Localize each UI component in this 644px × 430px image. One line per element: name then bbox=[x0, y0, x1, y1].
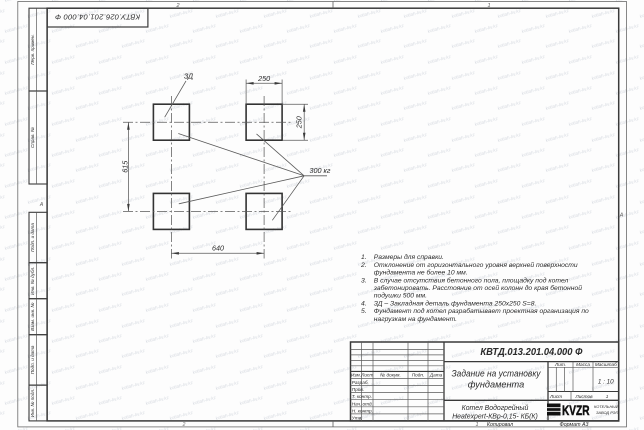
svg-text:kotlah-kv.kz: kotlah-kv.kz bbox=[239, 426, 264, 430]
svg-text:kotlah-kv.kz: kotlah-kv.kz bbox=[75, 224, 100, 235]
svg-text:kotlah-kv.kz: kotlah-kv.kz bbox=[169, 410, 194, 421]
svg-text:kotlah-kv.kz: kotlah-kv.kz bbox=[568, 147, 593, 158]
svg-text:kotlah-kv.kz: kotlah-kv.kz bbox=[192, 23, 217, 34]
svg-text:kotlah-kv.kz: kotlah-kv.kz bbox=[427, 426, 452, 430]
svg-text:kotlah-kv.kz: kotlah-kv.kz bbox=[98, 85, 123, 96]
svg-text:kotlah-kv.kz: kotlah-kv.kz bbox=[4, 178, 29, 189]
svg-text:kotlah-kv.kz: kotlah-kv.kz bbox=[169, 256, 194, 267]
svg-text:kotlah-kv.kz: kotlah-kv.kz bbox=[239, 147, 264, 158]
svg-text:kotlah-kv.kz: kotlah-kv.kz bbox=[145, 395, 170, 406]
svg-text:kotlah-kv.kz: kotlah-kv.kz bbox=[568, 178, 593, 189]
svg-text:kotlah-kv.kz: kotlah-kv.kz bbox=[239, 395, 264, 406]
svg-text:kotlah-kv.kz: kotlah-kv.kz bbox=[639, 194, 644, 205]
svg-text:kotlah-kv.kz: kotlah-kv.kz bbox=[263, 38, 288, 49]
svg-text:kotlah-kv.kz: kotlah-kv.kz bbox=[309, 70, 334, 81]
svg-text:Масштаб: Масштаб bbox=[595, 362, 617, 367]
svg-text:kotlah-kv.kz: kotlah-kv.kz bbox=[4, 54, 29, 65]
svg-text:kotlah-kv.kz: kotlah-kv.kz bbox=[568, 240, 593, 251]
svg-text:kotlah-kv.kz: kotlah-kv.kz bbox=[98, 54, 123, 65]
svg-text:kotlah-kv.kz: kotlah-kv.kz bbox=[591, 256, 616, 267]
svg-text:kotlah-kv.kz: kotlah-kv.kz bbox=[51, 147, 76, 158]
svg-text:kotlah-kv.kz: kotlah-kv.kz bbox=[333, 426, 358, 430]
svg-text:kotlah-kv.kz: kotlah-kv.kz bbox=[51, 116, 76, 127]
svg-text:kotlah-kv.kz: kotlah-kv.kz bbox=[51, 178, 76, 189]
svg-text:kotlah-kv.kz: kotlah-kv.kz bbox=[427, 240, 452, 251]
svg-text:kotlah-kv.kz: kotlah-kv.kz bbox=[380, 395, 405, 406]
svg-text:Листов: Листов bbox=[575, 394, 594, 399]
svg-text:kotlah-kv.kz: kotlah-kv.kz bbox=[51, 54, 76, 65]
svg-text:KVZR: KVZR bbox=[562, 403, 590, 418]
svg-text:kotlah-kv.kz: kotlah-kv.kz bbox=[263, 100, 288, 111]
svg-text:1: 1 bbox=[487, 3, 490, 9]
svg-text:kotlah-kv.kz: kotlah-kv.kz bbox=[568, 85, 593, 96]
svg-text:kotlah-kv.kz: kotlah-kv.kz bbox=[451, 194, 476, 205]
svg-text:kotlah-kv.kz: kotlah-kv.kz bbox=[286, 54, 311, 65]
svg-text:kotlah-kv.kz: kotlah-kv.kz bbox=[591, 348, 616, 359]
svg-text:kotlah-kv.kz: kotlah-kv.kz bbox=[639, 380, 644, 391]
svg-text:kotlah-kv.kz: kotlah-kv.kz bbox=[215, 348, 240, 359]
svg-text:kotlah-kv.kz: kotlah-kv.kz bbox=[51, 364, 76, 375]
svg-text:kotlah-kv.kz: kotlah-kv.kz bbox=[497, 8, 522, 19]
svg-text:kotlah-kv.kz: kotlah-kv.kz bbox=[27, 8, 52, 19]
svg-text:Взам. инв. №: Взам. инв. № bbox=[30, 302, 35, 330]
svg-text:kotlah-kv.kz: kotlah-kv.kz bbox=[639, 348, 644, 359]
svg-text:kotlah-kv.kz: kotlah-kv.kz bbox=[309, 256, 334, 267]
svg-text:kotlah-kv.kz: kotlah-kv.kz bbox=[98, 23, 123, 34]
svg-text:Перв. примен.: Перв. примен. bbox=[30, 34, 35, 65]
svg-text:kotlah-kv.kz: kotlah-kv.kz bbox=[309, 380, 334, 391]
svg-text:kotlah-kv.kz: kotlah-kv.kz bbox=[0, 38, 6, 49]
svg-text:kotlah-kv.kz: kotlah-kv.kz bbox=[0, 380, 6, 391]
svg-text:kotlah-kv.kz: kotlah-kv.kz bbox=[403, 132, 428, 143]
svg-text:kotlah-kv.kz: kotlah-kv.kz bbox=[121, 348, 146, 359]
svg-text:kotlah-kv.kz: kotlah-kv.kz bbox=[591, 318, 616, 329]
svg-text:kotlah-kv.kz: kotlah-kv.kz bbox=[27, 100, 52, 111]
svg-text:kotlah-kv.kz: kotlah-kv.kz bbox=[98, 333, 123, 344]
svg-text:kotlah-kv.kz: kotlah-kv.kz bbox=[145, 85, 170, 96]
svg-text:kotlah-kv.kz: kotlah-kv.kz bbox=[0, 348, 6, 359]
svg-text:kotlah-kv.kz: kotlah-kv.kz bbox=[98, 302, 123, 313]
svg-text:kotlah-kv.kz: kotlah-kv.kz bbox=[497, 194, 522, 205]
svg-text:Утв.: Утв. bbox=[352, 415, 363, 420]
svg-text:kotlah-kv.kz: kotlah-kv.kz bbox=[145, 333, 170, 344]
svg-text:kotlah-kv.kz: kotlah-kv.kz bbox=[403, 224, 428, 235]
svg-text:kotlah-kv.kz: kotlah-kv.kz bbox=[521, 240, 546, 251]
svg-text:kotlah-kv.kz: kotlah-kv.kz bbox=[427, 209, 452, 220]
svg-text:1: 1 bbox=[606, 394, 609, 399]
svg-text:kotlah-kv.kz: kotlah-kv.kz bbox=[169, 318, 194, 329]
svg-text:kotlah-kv.kz: kotlah-kv.kz bbox=[192, 209, 217, 220]
svg-text:kotlah-kv.kz: kotlah-kv.kz bbox=[474, 116, 499, 127]
svg-text:kotlah-kv.kz: kotlah-kv.kz bbox=[4, 271, 29, 282]
svg-text:kotlah-kv.kz: kotlah-kv.kz bbox=[239, 240, 264, 251]
svg-text:kotlah-kv.kz: kotlah-kv.kz bbox=[427, 54, 452, 65]
svg-text:kotlah-kv.kz: kotlah-kv.kz bbox=[497, 132, 522, 143]
svg-text:kotlah-kv.kz: kotlah-kv.kz bbox=[497, 70, 522, 81]
svg-text:kotlah-kv.kz: kotlah-kv.kz bbox=[403, 8, 428, 19]
svg-text:kotlah-kv.kz: kotlah-kv.kz bbox=[239, 54, 264, 65]
svg-text:kotlah-kv.kz: kotlah-kv.kz bbox=[357, 100, 382, 111]
svg-text:КВТД.013.201.04.000 Ф: КВТД.013.201.04.000 Ф bbox=[480, 347, 582, 358]
svg-text:kotlah-kv.kz: kotlah-kv.kz bbox=[380, 209, 405, 220]
svg-text:kotlah-kv.kz: kotlah-kv.kz bbox=[357, 194, 382, 205]
svg-text:kotlah-kv.kz: kotlah-kv.kz bbox=[639, 318, 644, 329]
svg-text:kotlah-kv.kz: kotlah-kv.kz bbox=[215, 380, 240, 391]
svg-text:kotlah-kv.kz: kotlah-kv.kz bbox=[145, 240, 170, 251]
svg-text:kotlah-kv.kz: kotlah-kv.kz bbox=[497, 318, 522, 329]
svg-text:КВТУ.026.201.04.000 Ф: КВТУ.026.201.04.000 Ф bbox=[55, 13, 140, 22]
svg-text:kotlah-kv.kz: kotlah-kv.kz bbox=[451, 8, 476, 19]
svg-text:kotlah-kv.kz: kotlah-kv.kz bbox=[239, 302, 264, 313]
svg-text:kotlah-kv.kz: kotlah-kv.kz bbox=[545, 380, 570, 391]
svg-text:kotlah-kv.kz: kotlah-kv.kz bbox=[474, 23, 499, 34]
svg-text:kotlah-kv.kz: kotlah-kv.kz bbox=[121, 132, 146, 143]
svg-text:А: А bbox=[39, 202, 44, 208]
svg-text:kotlah-kv.kz: kotlah-kv.kz bbox=[98, 178, 123, 189]
svg-text:kotlah-kv.kz: kotlah-kv.kz bbox=[75, 380, 100, 391]
svg-text:kotlah-kv.kz: kotlah-kv.kz bbox=[309, 286, 334, 297]
svg-text:kotlah-kv.kz: kotlah-kv.kz bbox=[591, 38, 616, 49]
svg-text:kotlah-kv.kz: kotlah-kv.kz bbox=[121, 70, 146, 81]
svg-text:2.: 2. bbox=[360, 262, 367, 269]
svg-text:kotlah-kv.kz: kotlah-kv.kz bbox=[333, 209, 358, 220]
svg-text:kotlah-kv.kz: kotlah-kv.kz bbox=[286, 271, 311, 282]
svg-text:kotlah-kv.kz: kotlah-kv.kz bbox=[591, 286, 616, 297]
svg-text:kotlah-kv.kz: kotlah-kv.kz bbox=[639, 256, 644, 267]
svg-text:kotlah-kv.kz: kotlah-kv.kz bbox=[98, 209, 123, 220]
svg-text:kotlah-kv.kz: kotlah-kv.kz bbox=[639, 8, 644, 19]
svg-text:kotlah-kv.kz: kotlah-kv.kz bbox=[639, 224, 644, 235]
svg-text:kotlah-kv.kz: kotlah-kv.kz bbox=[521, 23, 546, 34]
svg-text:kotlah-kv.kz: kotlah-kv.kz bbox=[333, 240, 358, 251]
svg-text:kotlah-kv.kz: kotlah-kv.kz bbox=[591, 70, 616, 81]
svg-text:kotlah-kv.kz: kotlah-kv.kz bbox=[286, 364, 311, 375]
svg-text:№ докум.: № докум. bbox=[380, 373, 401, 378]
svg-text:kotlah-kv.kz: kotlah-kv.kz bbox=[427, 85, 452, 96]
svg-text:kotlah-kv.kz: kotlah-kv.kz bbox=[215, 132, 240, 143]
svg-text:нагрузкам на фундамент.: нагрузкам на фундамент. bbox=[374, 315, 457, 323]
svg-text:kotlah-kv.kz: kotlah-kv.kz bbox=[51, 426, 76, 430]
svg-text:kotlah-kv.kz: kotlah-kv.kz bbox=[639, 38, 644, 49]
svg-text:kotlah-kv.kz: kotlah-kv.kz bbox=[309, 348, 334, 359]
svg-text:kotlah-kv.kz: kotlah-kv.kz bbox=[169, 162, 194, 173]
svg-text:3.: 3. bbox=[361, 277, 367, 284]
svg-text:kotlah-kv.kz: kotlah-kv.kz bbox=[98, 240, 123, 251]
svg-text:kotlah-kv.kz: kotlah-kv.kz bbox=[403, 194, 428, 205]
svg-text:kotlah-kv.kz: kotlah-kv.kz bbox=[521, 178, 546, 189]
svg-text:kotlah-kv.kz: kotlah-kv.kz bbox=[451, 224, 476, 235]
svg-text:kotlah-kv.kz: kotlah-kv.kz bbox=[4, 85, 29, 96]
svg-text:Формат А3: Формат А3 bbox=[560, 422, 589, 428]
svg-text:kotlah-kv.kz: kotlah-kv.kz bbox=[192, 302, 217, 313]
svg-text:kotlah-kv.kz: kotlah-kv.kz bbox=[121, 286, 146, 297]
svg-text:kotlah-kv.kz: kotlah-kv.kz bbox=[286, 85, 311, 96]
svg-text:фундамента не более 10 мм.: фундамента не более 10 мм. bbox=[374, 269, 468, 277]
svg-text:kotlah-kv.kz: kotlah-kv.kz bbox=[169, 8, 194, 19]
svg-text:Инв. № дубл.: Инв. № дубл. bbox=[30, 267, 35, 295]
svg-text:kotlah-kv.kz: kotlah-kv.kz bbox=[474, 147, 499, 158]
svg-text:kotlah-kv.kz: kotlah-kv.kz bbox=[145, 116, 170, 127]
svg-text:kotlah-kv.kz: kotlah-kv.kz bbox=[403, 70, 428, 81]
svg-text:kotlah-kv.kz: kotlah-kv.kz bbox=[192, 271, 217, 282]
svg-text:kotlah-kv.kz: kotlah-kv.kz bbox=[263, 318, 288, 329]
svg-text:kotlah-kv.kz: kotlah-kv.kz bbox=[51, 240, 76, 251]
svg-text:kotlah-kv.kz: kotlah-kv.kz bbox=[0, 286, 6, 297]
svg-text:kotlah-kv.kz: kotlah-kv.kz bbox=[309, 194, 334, 205]
svg-text:kotlah-kv.kz: kotlah-kv.kz bbox=[474, 178, 499, 189]
svg-text:kotlah-kv.kz: kotlah-kv.kz bbox=[591, 8, 616, 19]
svg-text:kotlah-kv.kz: kotlah-kv.kz bbox=[75, 38, 100, 49]
svg-text:1.: 1. bbox=[361, 254, 367, 261]
svg-text:kotlah-kv.kz: kotlah-kv.kz bbox=[98, 116, 123, 127]
svg-text:kotlah-kv.kz: kotlah-kv.kz bbox=[263, 8, 288, 19]
svg-text:kotlah-kv.kz: kotlah-kv.kz bbox=[169, 348, 194, 359]
svg-text:kotlah-kv.kz: kotlah-kv.kz bbox=[286, 209, 311, 220]
svg-text:Подп. и дата: Подп. и дата bbox=[30, 223, 35, 252]
svg-text:kotlah-kv.kz: kotlah-kv.kz bbox=[98, 395, 123, 406]
svg-text:kotlah-kv.kz: kotlah-kv.kz bbox=[121, 38, 146, 49]
svg-text:kotlah-kv.kz: kotlah-kv.kz bbox=[121, 410, 146, 421]
svg-text:kotlah-kv.kz: kotlah-kv.kz bbox=[333, 271, 358, 282]
svg-text:kotlah-kv.kz: kotlah-kv.kz bbox=[215, 318, 240, 329]
svg-text:kotlah-kv.kz: kotlah-kv.kz bbox=[4, 116, 29, 127]
svg-text:kotlah-kv.kz: kotlah-kv.kz bbox=[0, 132, 6, 143]
svg-text:Нач. отд.: Нач. отд. bbox=[352, 401, 373, 406]
svg-text:kotlah-kv.kz: kotlah-kv.kz bbox=[380, 426, 405, 430]
svg-text:kotlah-kv.kz: kotlah-kv.kz bbox=[215, 8, 240, 19]
svg-text:kotlah-kv.kz: kotlah-kv.kz bbox=[215, 224, 240, 235]
svg-text:kotlah-kv.kz: kotlah-kv.kz bbox=[545, 70, 570, 81]
svg-text:kotlah-kv.kz: kotlah-kv.kz bbox=[380, 178, 405, 189]
svg-text:kotlah-kv.kz: kotlah-kv.kz bbox=[192, 333, 217, 344]
svg-text:kotlah-kv.kz: kotlah-kv.kz bbox=[286, 240, 311, 251]
svg-text:kotlah-kv.kz: kotlah-kv.kz bbox=[309, 100, 334, 111]
svg-text:Котел Водогрейный: Котел Водогрейный bbox=[462, 404, 529, 412]
svg-text:kotlah-kv.kz: kotlah-kv.kz bbox=[75, 318, 100, 329]
svg-text:kotlah-kv.kz: kotlah-kv.kz bbox=[474, 54, 499, 65]
svg-text:kotlah-kv.kz: kotlah-kv.kz bbox=[521, 54, 546, 65]
svg-text:kotlah-kv.kz: kotlah-kv.kz bbox=[333, 302, 358, 313]
svg-text:kotlah-kv.kz: kotlah-kv.kz bbox=[51, 271, 76, 282]
svg-text:kotlah-kv.kz: kotlah-kv.kz bbox=[98, 271, 123, 282]
svg-text:kotlah-kv.kz: kotlah-kv.kz bbox=[51, 23, 76, 34]
svg-text:фундамента: фундамента bbox=[468, 380, 524, 390]
svg-text:kotlah-kv.kz: kotlah-kv.kz bbox=[263, 256, 288, 267]
svg-text:kotlah-kv.kz: kotlah-kv.kz bbox=[75, 162, 100, 173]
svg-text:забетонировать. Расстояние от: забетонировать. Расстояние от осей колон… bbox=[373, 284, 582, 292]
svg-text:kotlah-kv.kz: kotlah-kv.kz bbox=[263, 380, 288, 391]
svg-text:Размеры для справки.: Размеры для справки. bbox=[374, 253, 444, 261]
svg-text:kotlah-kv.kz: kotlah-kv.kz bbox=[545, 100, 570, 111]
svg-text:kotlah-kv.kz: kotlah-kv.kz bbox=[474, 209, 499, 220]
svg-text:kotlah-kv.kz: kotlah-kv.kz bbox=[192, 54, 217, 65]
svg-text:kotlah-kv.kz: kotlah-kv.kz bbox=[263, 286, 288, 297]
svg-text:kotlah-kv.kz: kotlah-kv.kz bbox=[615, 426, 640, 430]
svg-text:kotlah-kv.kz: kotlah-kv.kz bbox=[215, 410, 240, 421]
svg-text:kotlah-kv.kz: kotlah-kv.kz bbox=[357, 132, 382, 143]
svg-text:kotlah-kv.kz: kotlah-kv.kz bbox=[427, 147, 452, 158]
svg-text:kotlah-kv.kz: kotlah-kv.kz bbox=[215, 256, 240, 267]
svg-text:kotlah-kv.kz: kotlah-kv.kz bbox=[4, 395, 29, 406]
svg-text:Н. контр.: Н. контр. bbox=[352, 408, 373, 413]
svg-text:kotlah-kv.kz: kotlah-kv.kz bbox=[451, 70, 476, 81]
svg-text:kotlah-kv.kz: kotlah-kv.kz bbox=[545, 194, 570, 205]
svg-text:kotlah-kv.kz: kotlah-kv.kz bbox=[4, 147, 29, 158]
svg-text:kotlah-kv.kz: kotlah-kv.kz bbox=[0, 100, 6, 111]
svg-text:kotlah-kv.kz: kotlah-kv.kz bbox=[169, 100, 194, 111]
svg-text:kotlah-kv.kz: kotlah-kv.kz bbox=[380, 54, 405, 65]
svg-text:kotlah-kv.kz: kotlah-kv.kz bbox=[451, 348, 476, 359]
svg-text:Отклонение от горизонтального: Отклонение от горизонтального уровня вер… bbox=[374, 261, 578, 269]
svg-text:kotlah-kv.kz: kotlah-kv.kz bbox=[145, 209, 170, 220]
svg-text:kotlah-kv.kz: kotlah-kv.kz bbox=[380, 116, 405, 127]
svg-text:kotlah-kv.kz: kotlah-kv.kz bbox=[309, 224, 334, 235]
svg-text:Дата: Дата bbox=[429, 373, 443, 378]
svg-text:kotlah-kv.kz: kotlah-kv.kz bbox=[4, 302, 29, 313]
svg-text:kotlah-kv.kz: kotlah-kv.kz bbox=[286, 333, 311, 344]
svg-text:kotlah-kv.kz: kotlah-kv.kz bbox=[568, 271, 593, 282]
svg-text:2: 2 bbox=[175, 3, 179, 9]
svg-text:kotlah-kv.kz: kotlah-kv.kz bbox=[451, 100, 476, 111]
svg-text:подушки 500 мм.: подушки 500 мм. bbox=[374, 292, 427, 300]
svg-text:kotlah-kv.kz: kotlah-kv.kz bbox=[98, 147, 123, 158]
svg-text:КОТЕЛЬНЫЙ: КОТЕЛЬНЫЙ bbox=[594, 404, 619, 409]
svg-text:kotlah-kv.kz: kotlah-kv.kz bbox=[98, 426, 123, 430]
svg-text:kotlah-kv.kz: kotlah-kv.kz bbox=[4, 333, 29, 344]
svg-text:5.: 5. bbox=[361, 308, 367, 315]
svg-text:kotlah-kv.kz: kotlah-kv.kz bbox=[239, 271, 264, 282]
svg-text:Масса: Масса bbox=[576, 362, 590, 367]
svg-text:kotlah-kv.kz: kotlah-kv.kz bbox=[145, 54, 170, 65]
svg-text:kotlah-kv.kz: kotlah-kv.kz bbox=[169, 380, 194, 391]
svg-text:kotlah-kv.kz: kotlah-kv.kz bbox=[239, 364, 264, 375]
svg-text:kotlah-kv.kz: kotlah-kv.kz bbox=[75, 132, 100, 143]
svg-text:kotlah-kv.kz: kotlah-kv.kz bbox=[309, 318, 334, 329]
svg-text:kotlah-kv.kz: kotlah-kv.kz bbox=[121, 100, 146, 111]
svg-text:kotlah-kv.kz: kotlah-kv.kz bbox=[568, 209, 593, 220]
svg-text:kotlah-kv.kz: kotlah-kv.kz bbox=[286, 147, 311, 158]
svg-text:kotlah-kv.kz: kotlah-kv.kz bbox=[145, 364, 170, 375]
svg-text:kotlah-kv.kz: kotlah-kv.kz bbox=[357, 224, 382, 235]
svg-text:kotlah-kv.kz: kotlah-kv.kz bbox=[568, 54, 593, 65]
svg-text:kotlah-kv.kz: kotlah-kv.kz bbox=[427, 116, 452, 127]
svg-text:kotlah-kv.kz: kotlah-kv.kz bbox=[545, 224, 570, 235]
svg-text:Лист: Лист bbox=[360, 373, 373, 378]
svg-text:kotlah-kv.kz: kotlah-kv.kz bbox=[286, 23, 311, 34]
svg-text:kotlah-kv.kz: kotlah-kv.kz bbox=[357, 8, 382, 19]
svg-text:kotlah-kv.kz: kotlah-kv.kz bbox=[521, 85, 546, 96]
svg-text:kotlah-kv.kz: kotlah-kv.kz bbox=[192, 364, 217, 375]
svg-text:kotlah-kv.kz: kotlah-kv.kz bbox=[380, 240, 405, 251]
svg-text:300 кг: 300 кг bbox=[310, 166, 331, 175]
svg-text:kotlah-kv.kz: kotlah-kv.kz bbox=[639, 70, 644, 81]
svg-text:kotlah-kv.kz: kotlah-kv.kz bbox=[145, 147, 170, 158]
svg-text:kotlah-kv.kz: kotlah-kv.kz bbox=[121, 256, 146, 267]
svg-text:kotlah-kv.kz: kotlah-kv.kz bbox=[0, 8, 6, 19]
svg-text:kotlah-kv.kz: kotlah-kv.kz bbox=[591, 132, 616, 143]
svg-text:kotlah-kv.kz: kotlah-kv.kz bbox=[639, 410, 644, 421]
svg-text:kotlah-kv.kz: kotlah-kv.kz bbox=[357, 162, 382, 173]
svg-text:kotlah-kv.kz: kotlah-kv.kz bbox=[403, 38, 428, 49]
svg-text:kotlah-kv.kz: kotlah-kv.kz bbox=[333, 178, 358, 189]
svg-text:kotlah-kv.kz: kotlah-kv.kz bbox=[545, 132, 570, 143]
svg-text:kotlah-kv.kz: kotlah-kv.kz bbox=[497, 224, 522, 235]
svg-text:kotlah-kv.kz: kotlah-kv.kz bbox=[497, 100, 522, 111]
svg-text:kotlah-kv.kz: kotlah-kv.kz bbox=[263, 132, 288, 143]
svg-text:kotlah-kv.kz: kotlah-kv.kz bbox=[0, 256, 6, 267]
svg-text:kotlah-kv.kz: kotlah-kv.kz bbox=[545, 38, 570, 49]
svg-text:kotlah-kv.kz: kotlah-kv.kz bbox=[0, 224, 6, 235]
svg-text:4.: 4. bbox=[361, 300, 367, 307]
svg-text:kotlah-kv.kz: kotlah-kv.kz bbox=[98, 364, 123, 375]
svg-text:kotlah-kv.kz: kotlah-kv.kz bbox=[639, 286, 644, 297]
svg-text:kotlah-kv.kz: kotlah-kv.kz bbox=[215, 100, 240, 111]
svg-text:kotlah-kv.kz: kotlah-kv.kz bbox=[192, 85, 217, 96]
svg-text:kotlah-kv.kz: kotlah-kv.kz bbox=[286, 426, 311, 430]
svg-text:kotlah-kv.kz: kotlah-kv.kz bbox=[215, 162, 240, 173]
svg-text:kotlah-kv.kz: kotlah-kv.kz bbox=[27, 162, 52, 173]
svg-text:kotlah-kv.kz: kotlah-kv.kz bbox=[545, 162, 570, 173]
svg-text:kotlah-kv.kz: kotlah-kv.kz bbox=[521, 426, 546, 430]
svg-text:kotlah-kv.kz: kotlah-kv.kz bbox=[215, 194, 240, 205]
svg-text:kotlah-kv.kz: kotlah-kv.kz bbox=[75, 410, 100, 421]
svg-text:kotlah-kv.kz: kotlah-kv.kz bbox=[145, 302, 170, 313]
svg-text:kotlah-kv.kz: kotlah-kv.kz bbox=[121, 380, 146, 391]
svg-text:kotlah-kv.kz: kotlah-kv.kz bbox=[51, 85, 76, 96]
svg-text:kotlah-kv.kz: kotlah-kv.kz bbox=[333, 147, 358, 158]
svg-text:kotlah-kv.kz: kotlah-kv.kz bbox=[51, 302, 76, 313]
svg-text:ЗД: ЗД bbox=[184, 72, 193, 81]
svg-text:kotlah-kv.kz: kotlah-kv.kz bbox=[4, 364, 29, 375]
svg-text:kotlah-kv.kz: kotlah-kv.kz bbox=[75, 286, 100, 297]
svg-text:kotlah-kv.kz: kotlah-kv.kz bbox=[309, 410, 334, 421]
svg-text:kotlah-kv.kz: kotlah-kv.kz bbox=[192, 426, 217, 430]
svg-text:kotlah-kv.kz: kotlah-kv.kz bbox=[75, 256, 100, 267]
svg-text:kotlah-kv.kz: kotlah-kv.kz bbox=[263, 348, 288, 359]
svg-text:kotlah-kv.kz: kotlah-kv.kz bbox=[403, 410, 428, 421]
svg-text:kotlah-kv.kz: kotlah-kv.kz bbox=[286, 395, 311, 406]
svg-text:615: 615 bbox=[121, 160, 130, 173]
svg-text:kotlah-kv.kz: kotlah-kv.kz bbox=[51, 333, 76, 344]
svg-text:kotlah-kv.kz: kotlah-kv.kz bbox=[75, 194, 100, 205]
svg-text:Фундамент под котел разрабатыв: Фундамент под котел разрабатывает проект… bbox=[374, 307, 589, 315]
svg-text:kotlah-kv.kz: kotlah-kv.kz bbox=[145, 271, 170, 282]
svg-text:kotlah-kv.kz: kotlah-kv.kz bbox=[239, 333, 264, 344]
svg-text:kotlah-kv.kz: kotlah-kv.kz bbox=[0, 194, 6, 205]
svg-text:kotlah-kv.kz: kotlah-kv.kz bbox=[591, 100, 616, 111]
svg-text:kotlah-kv.kz: kotlah-kv.kz bbox=[145, 23, 170, 34]
svg-text:kotlah-kv.kz: kotlah-kv.kz bbox=[239, 85, 264, 96]
svg-text:kotlah-kv.kz: kotlah-kv.kz bbox=[51, 209, 76, 220]
svg-text:kotlah-kv.kz: kotlah-kv.kz bbox=[591, 224, 616, 235]
svg-text:kotlah-kv.kz: kotlah-kv.kz bbox=[215, 286, 240, 297]
svg-text:Heatexpert-КВр-0,15- КБ(К): Heatexpert-КВр-0,15- КБ(К) bbox=[452, 413, 538, 420]
svg-text:kotlah-kv.kz: kotlah-kv.kz bbox=[169, 286, 194, 297]
svg-text:kotlah-kv.kz: kotlah-kv.kz bbox=[521, 209, 546, 220]
svg-text:kotlah-kv.kz: kotlah-kv.kz bbox=[0, 318, 6, 329]
svg-text:kotlah-kv.kz: kotlah-kv.kz bbox=[75, 348, 100, 359]
svg-text:kotlah-kv.kz: kotlah-kv.kz bbox=[192, 147, 217, 158]
svg-text:kotlah-kv.kz: kotlah-kv.kz bbox=[309, 8, 334, 19]
svg-text:kotlah-kv.kz: kotlah-kv.kz bbox=[27, 70, 52, 81]
svg-text:Изм.: Изм. bbox=[351, 373, 361, 378]
svg-text:kotlah-kv.kz: kotlah-kv.kz bbox=[639, 100, 644, 111]
svg-text:kotlah-kv.kz: kotlah-kv.kz bbox=[380, 85, 405, 96]
svg-text:kotlah-kv.kz: kotlah-kv.kz bbox=[145, 426, 170, 430]
svg-text:kotlah-kv.kz: kotlah-kv.kz bbox=[239, 209, 264, 220]
svg-text:kotlah-kv.kz: kotlah-kv.kz bbox=[215, 38, 240, 49]
svg-text:Лит.: Лит. bbox=[554, 362, 566, 367]
